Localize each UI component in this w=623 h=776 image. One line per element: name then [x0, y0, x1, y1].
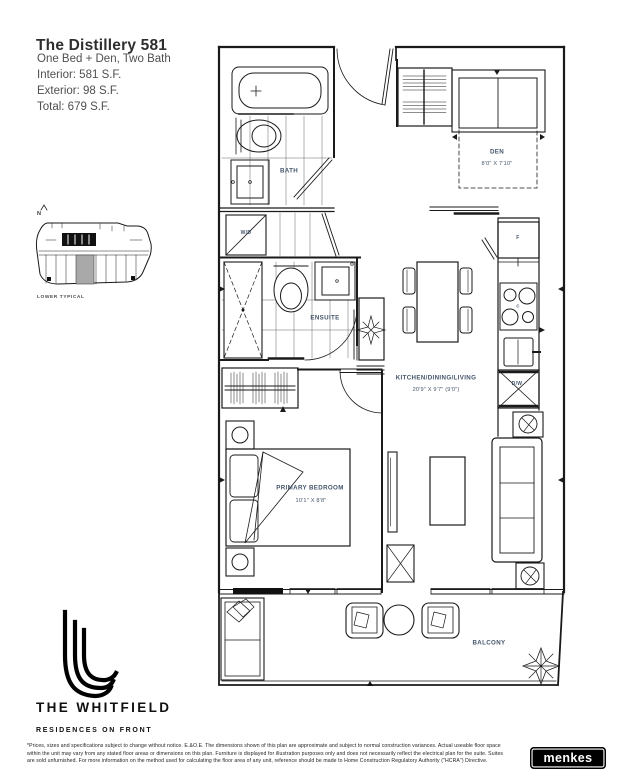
brand-name: THE WHITFIELD	[36, 700, 171, 715]
balcony-label: BALCONY	[472, 640, 505, 647]
brand-tagline: RESIDENCES ON FRONT	[36, 727, 152, 734]
ensuite-label: ENSUITE	[310, 315, 339, 322]
bedroom-dimensions: 10'1" X 8'8"	[296, 498, 327, 504]
kitchen-wall	[430, 207, 498, 259]
unit-type: One Bed + Den, Two Bath	[37, 53, 171, 65]
dining-furniture	[403, 262, 472, 342]
whitfield-logo-mark	[65, 612, 116, 696]
entry-door	[334, 47, 397, 126]
interior-area: Interior: 581 S.F.	[37, 69, 121, 81]
den-label: DEN	[490, 149, 504, 156]
bath-label: BATH	[280, 168, 298, 175]
den-furniture	[452, 70, 545, 188]
bedroom-furniture	[226, 421, 350, 576]
window-wall	[219, 588, 564, 595]
bath-fixtures	[222, 47, 334, 205]
planter	[357, 298, 385, 374]
disclaimer-line-1: *Prices, sizes and specifications subjec…	[27, 743, 527, 751]
north-indicator: N	[37, 211, 41, 217]
developer-logo: menkes	[530, 747, 606, 769]
ensuite-fixtures	[219, 258, 357, 360]
disclaimer: *Prices, sizes and specifications subjec…	[27, 743, 527, 766]
unit-walls	[219, 47, 564, 592]
cooktop-label: C	[516, 304, 519, 309]
balcony-drawing	[219, 592, 563, 686]
dishwasher-label: D/W	[512, 381, 523, 387]
bedroom-closet	[222, 368, 298, 408]
total-area: Total: 679 S.F.	[37, 101, 110, 113]
disclaimer-line-2: within the unit may vary from any stated…	[27, 751, 527, 759]
exterior-area: Exterior: 98 S.F.	[37, 85, 119, 97]
primary-bedroom-label: PRIMARY BEDROOM	[276, 485, 343, 492]
kitchen-appliances	[498, 218, 545, 437]
disclaimer-line-3: are sold unfurnished. For more informati…	[27, 758, 527, 766]
bedroom-door	[298, 369, 382, 592]
floor-plan-drawing	[0, 0, 623, 776]
keyplan-caption: LOWER TYPICAL	[37, 295, 85, 300]
kitchen-dimensions: 20'9" X 9'7" (9'0")	[413, 387, 460, 393]
living-furniture	[387, 438, 544, 589]
keyplan-drawing	[36, 205, 151, 284]
den-dimensions: 8'0" X 7'10"	[482, 161, 513, 167]
kitchen-dining-living-label: KITCHEN/DINING/LIVING	[396, 375, 477, 382]
fridge-label: F	[516, 235, 519, 241]
wall-ticks	[219, 286, 564, 594]
washer-dryer-label: W/D	[241, 230, 252, 236]
entry-closet	[398, 68, 452, 126]
